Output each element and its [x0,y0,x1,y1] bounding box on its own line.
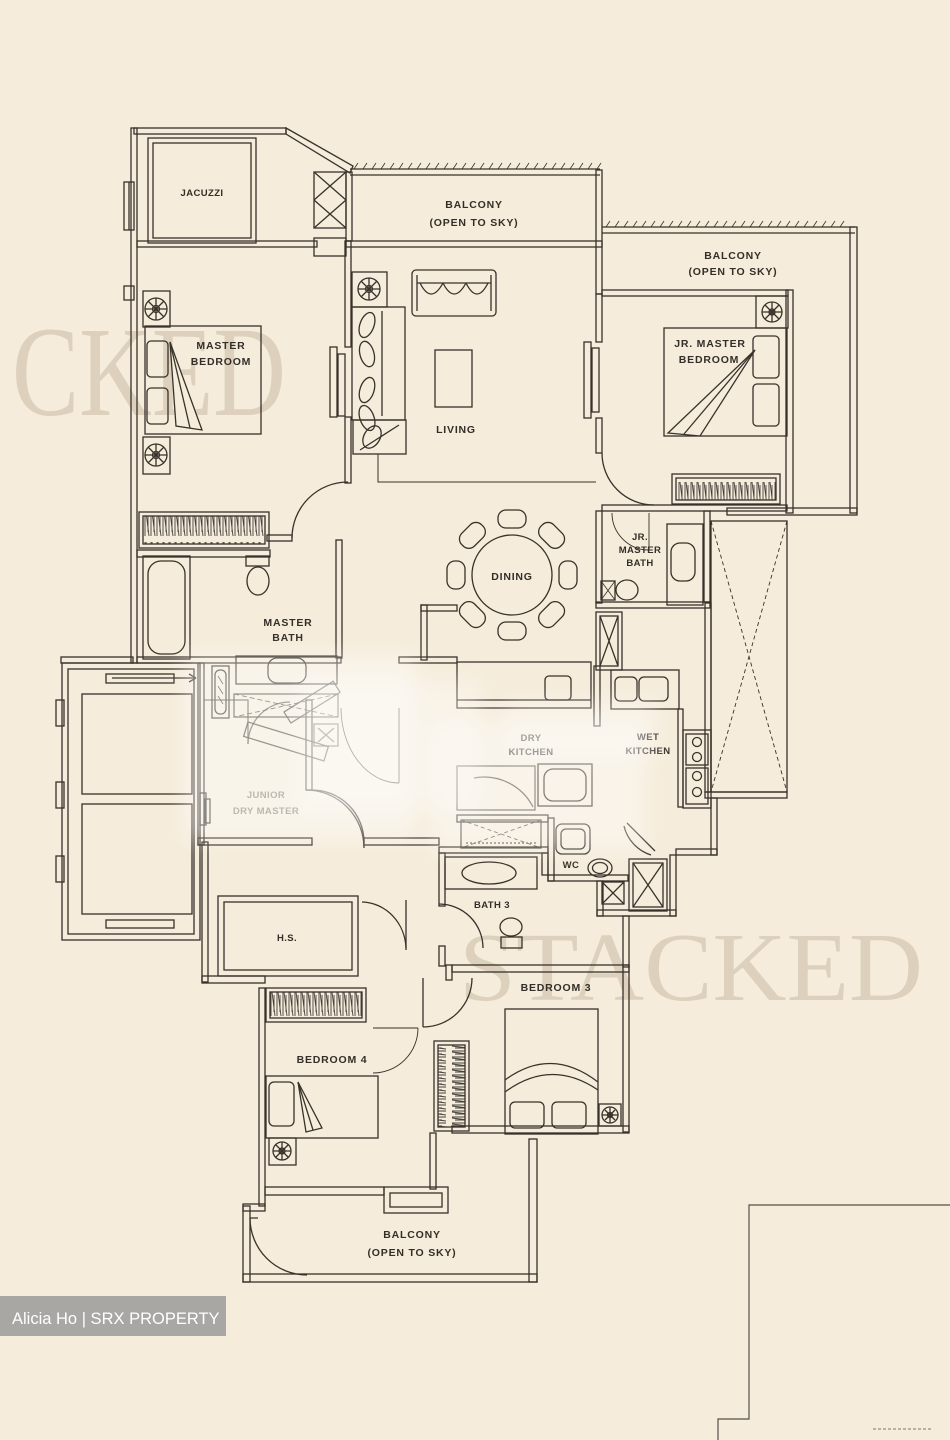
svg-text:BEDROOM: BEDROOM [679,354,739,366]
svg-text:MASTER: MASTER [196,340,245,352]
svg-text:BEDROOM 3: BEDROOM 3 [521,982,592,994]
svg-text:BEDROOM 4: BEDROOM 4 [297,1054,368,1066]
svg-text:STACKED: STACKED [459,914,923,1022]
svg-text:CKED: CKED [12,301,286,443]
svg-text:(OPEN TO SKY): (OPEN TO SKY) [430,217,519,229]
svg-text:WC: WC [563,860,580,871]
svg-text:BALCONY: BALCONY [383,1229,441,1241]
svg-text:LIVING: LIVING [436,424,476,436]
svg-text:BATH: BATH [272,632,304,644]
svg-text:(OPEN TO SKY): (OPEN TO SKY) [368,1247,457,1259]
svg-text:BALCONY: BALCONY [704,250,762,262]
svg-text:MASTER: MASTER [263,617,312,629]
svg-text:JR. MASTER: JR. MASTER [674,338,746,350]
svg-text:(OPEN TO SKY): (OPEN TO SKY) [689,266,778,278]
svg-text:BATH 3: BATH 3 [474,900,510,911]
svg-text:DINING: DINING [491,571,533,583]
svg-text:BATH: BATH [626,558,653,569]
svg-text:JR.: JR. [632,532,648,543]
svg-text:H.S.: H.S. [277,933,297,944]
svg-text:Alicia Ho | SRX PROPERTY: Alicia Ho | SRX PROPERTY [12,1310,220,1328]
svg-text:JACUZZI: JACUZZI [181,188,224,199]
svg-text:BALCONY: BALCONY [445,199,503,211]
svg-text:BEDROOM: BEDROOM [191,356,251,368]
svg-text:MASTER: MASTER [619,545,662,556]
